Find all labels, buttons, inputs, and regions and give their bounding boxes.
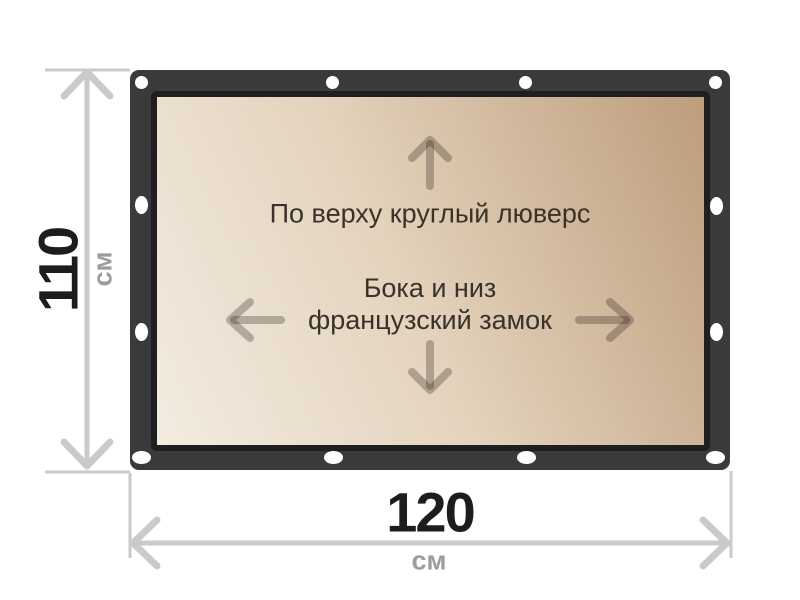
grommet bbox=[135, 196, 148, 214]
grommet bbox=[132, 451, 151, 464]
grommet bbox=[709, 76, 722, 89]
tarpaulin-panel bbox=[151, 91, 710, 451]
banner-size-diagram: По верху круглый люверс Бока и низ франц… bbox=[0, 0, 800, 600]
arrowhead-down-icon bbox=[64, 442, 110, 466]
height-dimension-value: 110 bbox=[26, 228, 91, 312]
grommet bbox=[519, 76, 532, 89]
arrowhead-left-icon bbox=[133, 520, 157, 566]
grommet bbox=[710, 323, 723, 341]
width-dimension-unit: см bbox=[412, 546, 447, 577]
grommet bbox=[706, 451, 725, 464]
arrowhead-right-icon bbox=[703, 520, 727, 566]
panel-label-middle-line1: Бока и низ bbox=[308, 272, 552, 304]
height-dimension-unit: см bbox=[88, 252, 119, 287]
panel-label-middle: Бока и низ французский замок bbox=[308, 272, 552, 336]
arrowhead-up-icon bbox=[64, 72, 110, 96]
grommet bbox=[326, 76, 339, 89]
panel-label-top: По верху круглый люверс bbox=[270, 199, 591, 230]
grommet bbox=[710, 197, 723, 215]
width-dimension-value: 120 bbox=[386, 480, 473, 545]
grommet bbox=[135, 76, 148, 89]
tarpaulin-frame bbox=[130, 70, 730, 470]
panel-label-middle-line2: французский замок bbox=[308, 304, 552, 336]
grommet bbox=[324, 451, 343, 464]
grommet bbox=[517, 451, 536, 464]
grommet bbox=[135, 323, 148, 341]
